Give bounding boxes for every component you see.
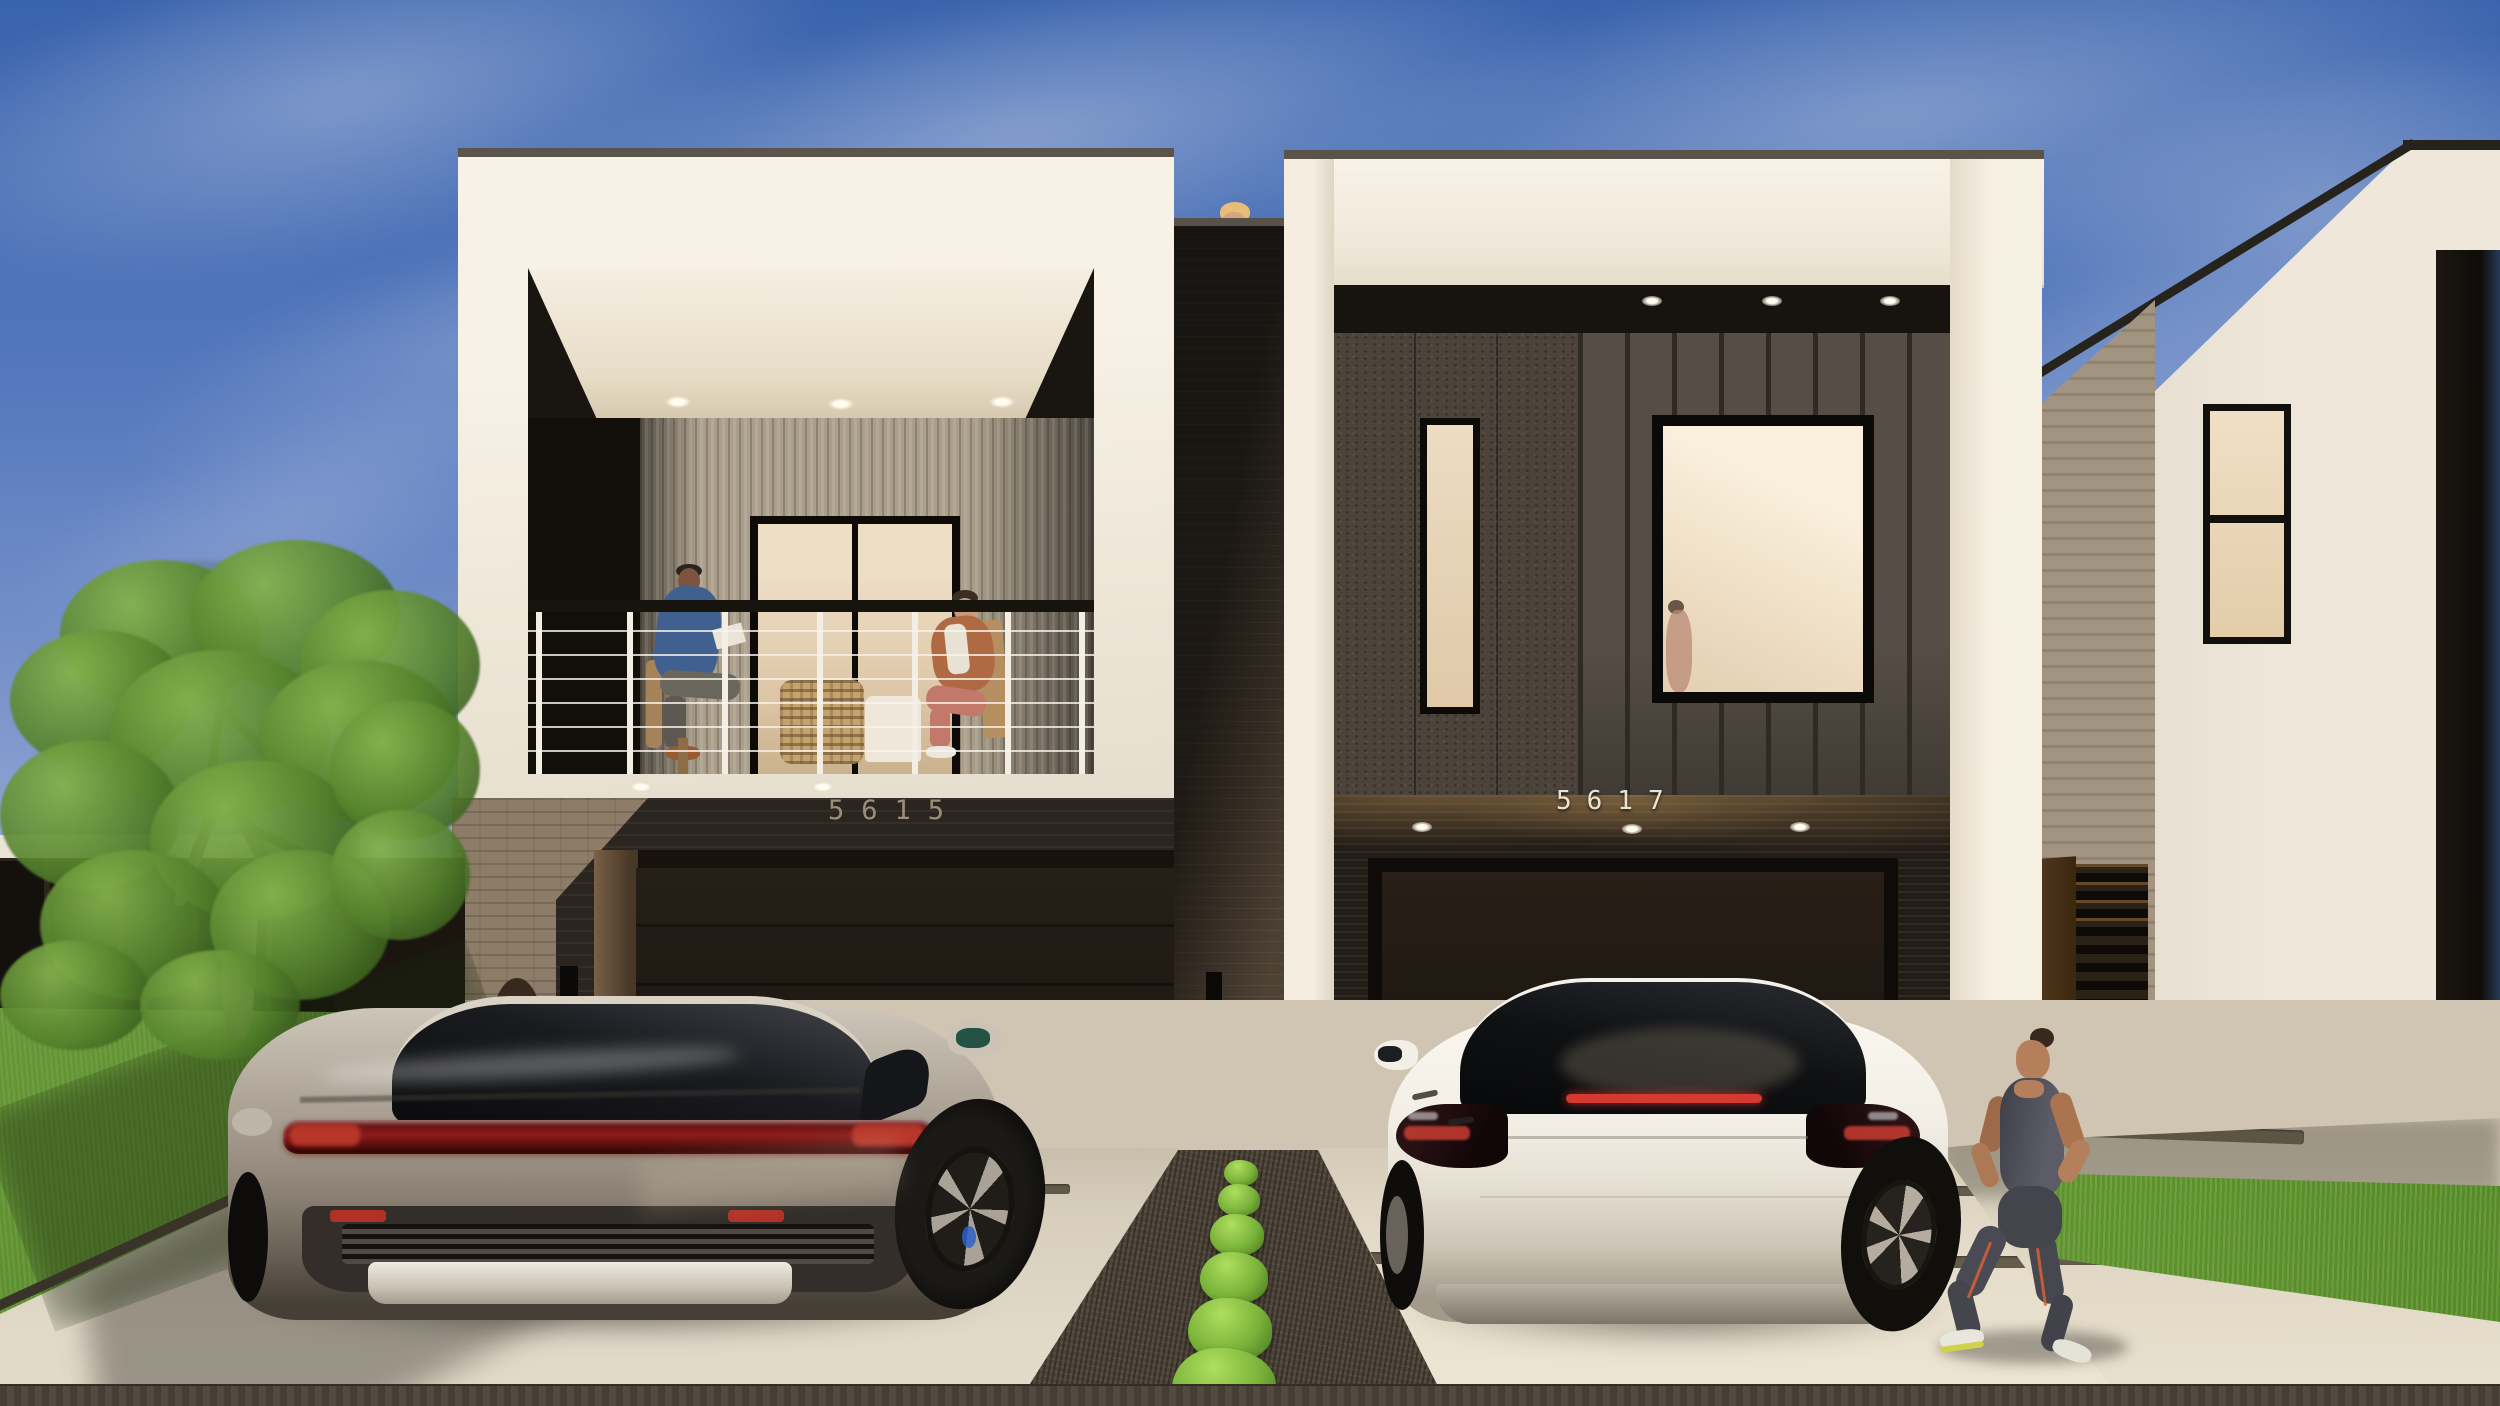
white-car-taillight-right-spec <box>1868 1112 1898 1120</box>
left-house-number: 5615 <box>828 795 961 826</box>
railing-cable <box>528 630 1094 632</box>
window-figure-body <box>1666 610 1692 692</box>
railing-cable <box>528 654 1094 656</box>
white-car-bumper-lip <box>1436 1284 1906 1324</box>
gray-car-reflector-right <box>728 1210 784 1222</box>
hedge-bush <box>1200 1252 1268 1304</box>
gray-car-taillight-glow-left <box>290 1124 360 1146</box>
neighbor-window-glass <box>2210 411 2284 637</box>
woman-shoe <box>926 746 956 758</box>
upper-soffit-downlight <box>1880 296 1900 306</box>
jogger-head <box>2016 1040 2050 1080</box>
balcony-railing-top-rail <box>528 600 1094 612</box>
white-car-left-rim-sliver <box>1386 1196 1408 1274</box>
right-house-top-band <box>1284 159 2044 288</box>
railing-cable <box>528 702 1094 704</box>
party-wall-cap <box>1158 218 1304 226</box>
white-car-taillight-left-glow <box>1404 1126 1470 1140</box>
railing-cable <box>528 726 1094 728</box>
upper-soffit-downlight <box>1642 296 1662 306</box>
gray-car-reflector-left <box>330 1210 386 1222</box>
scene-canvas: 5615 5617 <box>0 0 2500 1406</box>
neighbor-roof-coping <box>2403 140 2500 150</box>
soffit-downlight <box>812 782 834 792</box>
white-car-mirror-left-glass <box>1378 1046 1402 1062</box>
soffit-downlight <box>630 782 652 792</box>
jogger-chest-skin <box>2014 1080 2044 1098</box>
tree-canopy <box>0 940 150 1050</box>
right-house-number: 5617 <box>1556 786 1679 816</box>
neighbor-window-mullion <box>2210 515 2284 523</box>
white-car-brake-light <box>1566 1094 1762 1103</box>
ceiling-downlight <box>665 396 691 408</box>
narrow-window-glass <box>1427 425 1473 707</box>
ceiling-downlight <box>828 398 854 410</box>
lower-soffit-downlight <box>1790 822 1810 832</box>
woman-shin <box>930 708 950 748</box>
gray-car-brake-caliper <box>962 1226 976 1248</box>
right-house-panel-top-band <box>1334 285 1952 333</box>
jogger-hips <box>1998 1186 2062 1248</box>
lower-soffit-downlight <box>1622 824 1642 834</box>
hedge-bush <box>1210 1214 1264 1256</box>
tree-canopy <box>330 810 470 940</box>
upper-soffit-downlight <box>1762 296 1782 306</box>
gray-car-lower-plate <box>368 1262 792 1304</box>
hedge-bush <box>1224 1160 1258 1186</box>
man-chair-leg <box>678 738 688 774</box>
gray-car-diffuser-vents <box>342 1224 874 1264</box>
railing-cable <box>528 750 1094 752</box>
white-car-bumper-line <box>1480 1196 1860 1198</box>
hedge-bush <box>1218 1184 1260 1216</box>
gray-car-left-wheel <box>228 1172 268 1302</box>
gray-car-mirror-glass <box>956 1028 990 1048</box>
large-window-glass <box>1663 426 1863 692</box>
white-car-interior-hint <box>1560 1028 1800 1098</box>
neighbor-louvered-gate-highlight <box>2076 864 2148 934</box>
ceiling-downlight <box>989 396 1015 408</box>
left-house-balcony-recess <box>528 268 1094 774</box>
street-gravel-strip <box>0 1384 2500 1406</box>
lower-soffit-downlight <box>1412 822 1432 832</box>
railing-cable <box>528 678 1094 680</box>
white-car-taillight-left-spec <box>1408 1112 1438 1120</box>
gray-car-mirror-left <box>232 1108 272 1136</box>
white-car-trunk-crease <box>1508 1136 1808 1139</box>
